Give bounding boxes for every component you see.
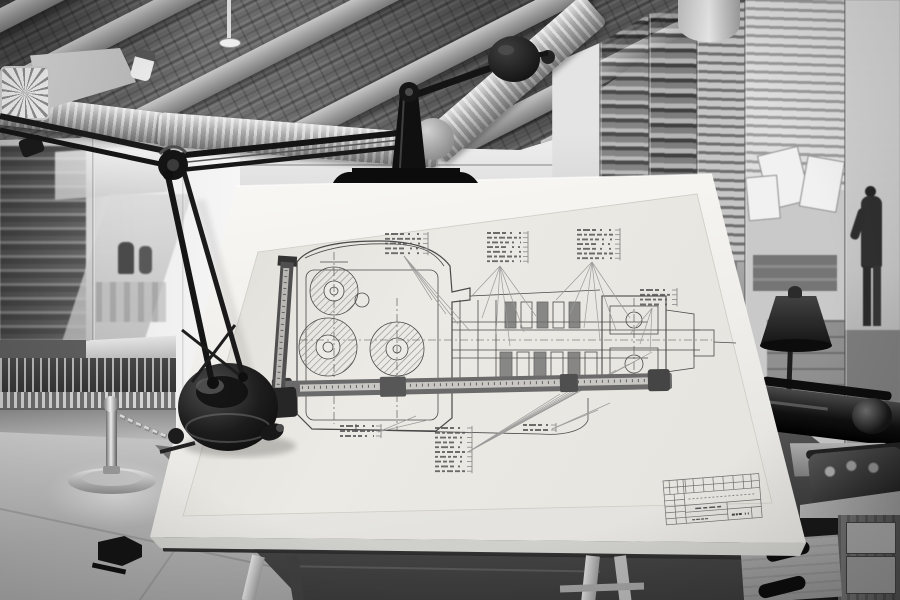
drafting-board-overlay [0, 0, 900, 600]
pedestal-post [392, 94, 426, 170]
stanchion-cap [103, 396, 119, 412]
stanchion-collar [103, 466, 120, 474]
stanchion-post [106, 408, 117, 474]
arm-pedestal [333, 36, 548, 183]
museum-drafting-board-photo: Black-and-white museum photograph: a lar… [0, 0, 900, 600]
arm-counterweight [488, 36, 540, 82]
head-knob [168, 428, 184, 444]
